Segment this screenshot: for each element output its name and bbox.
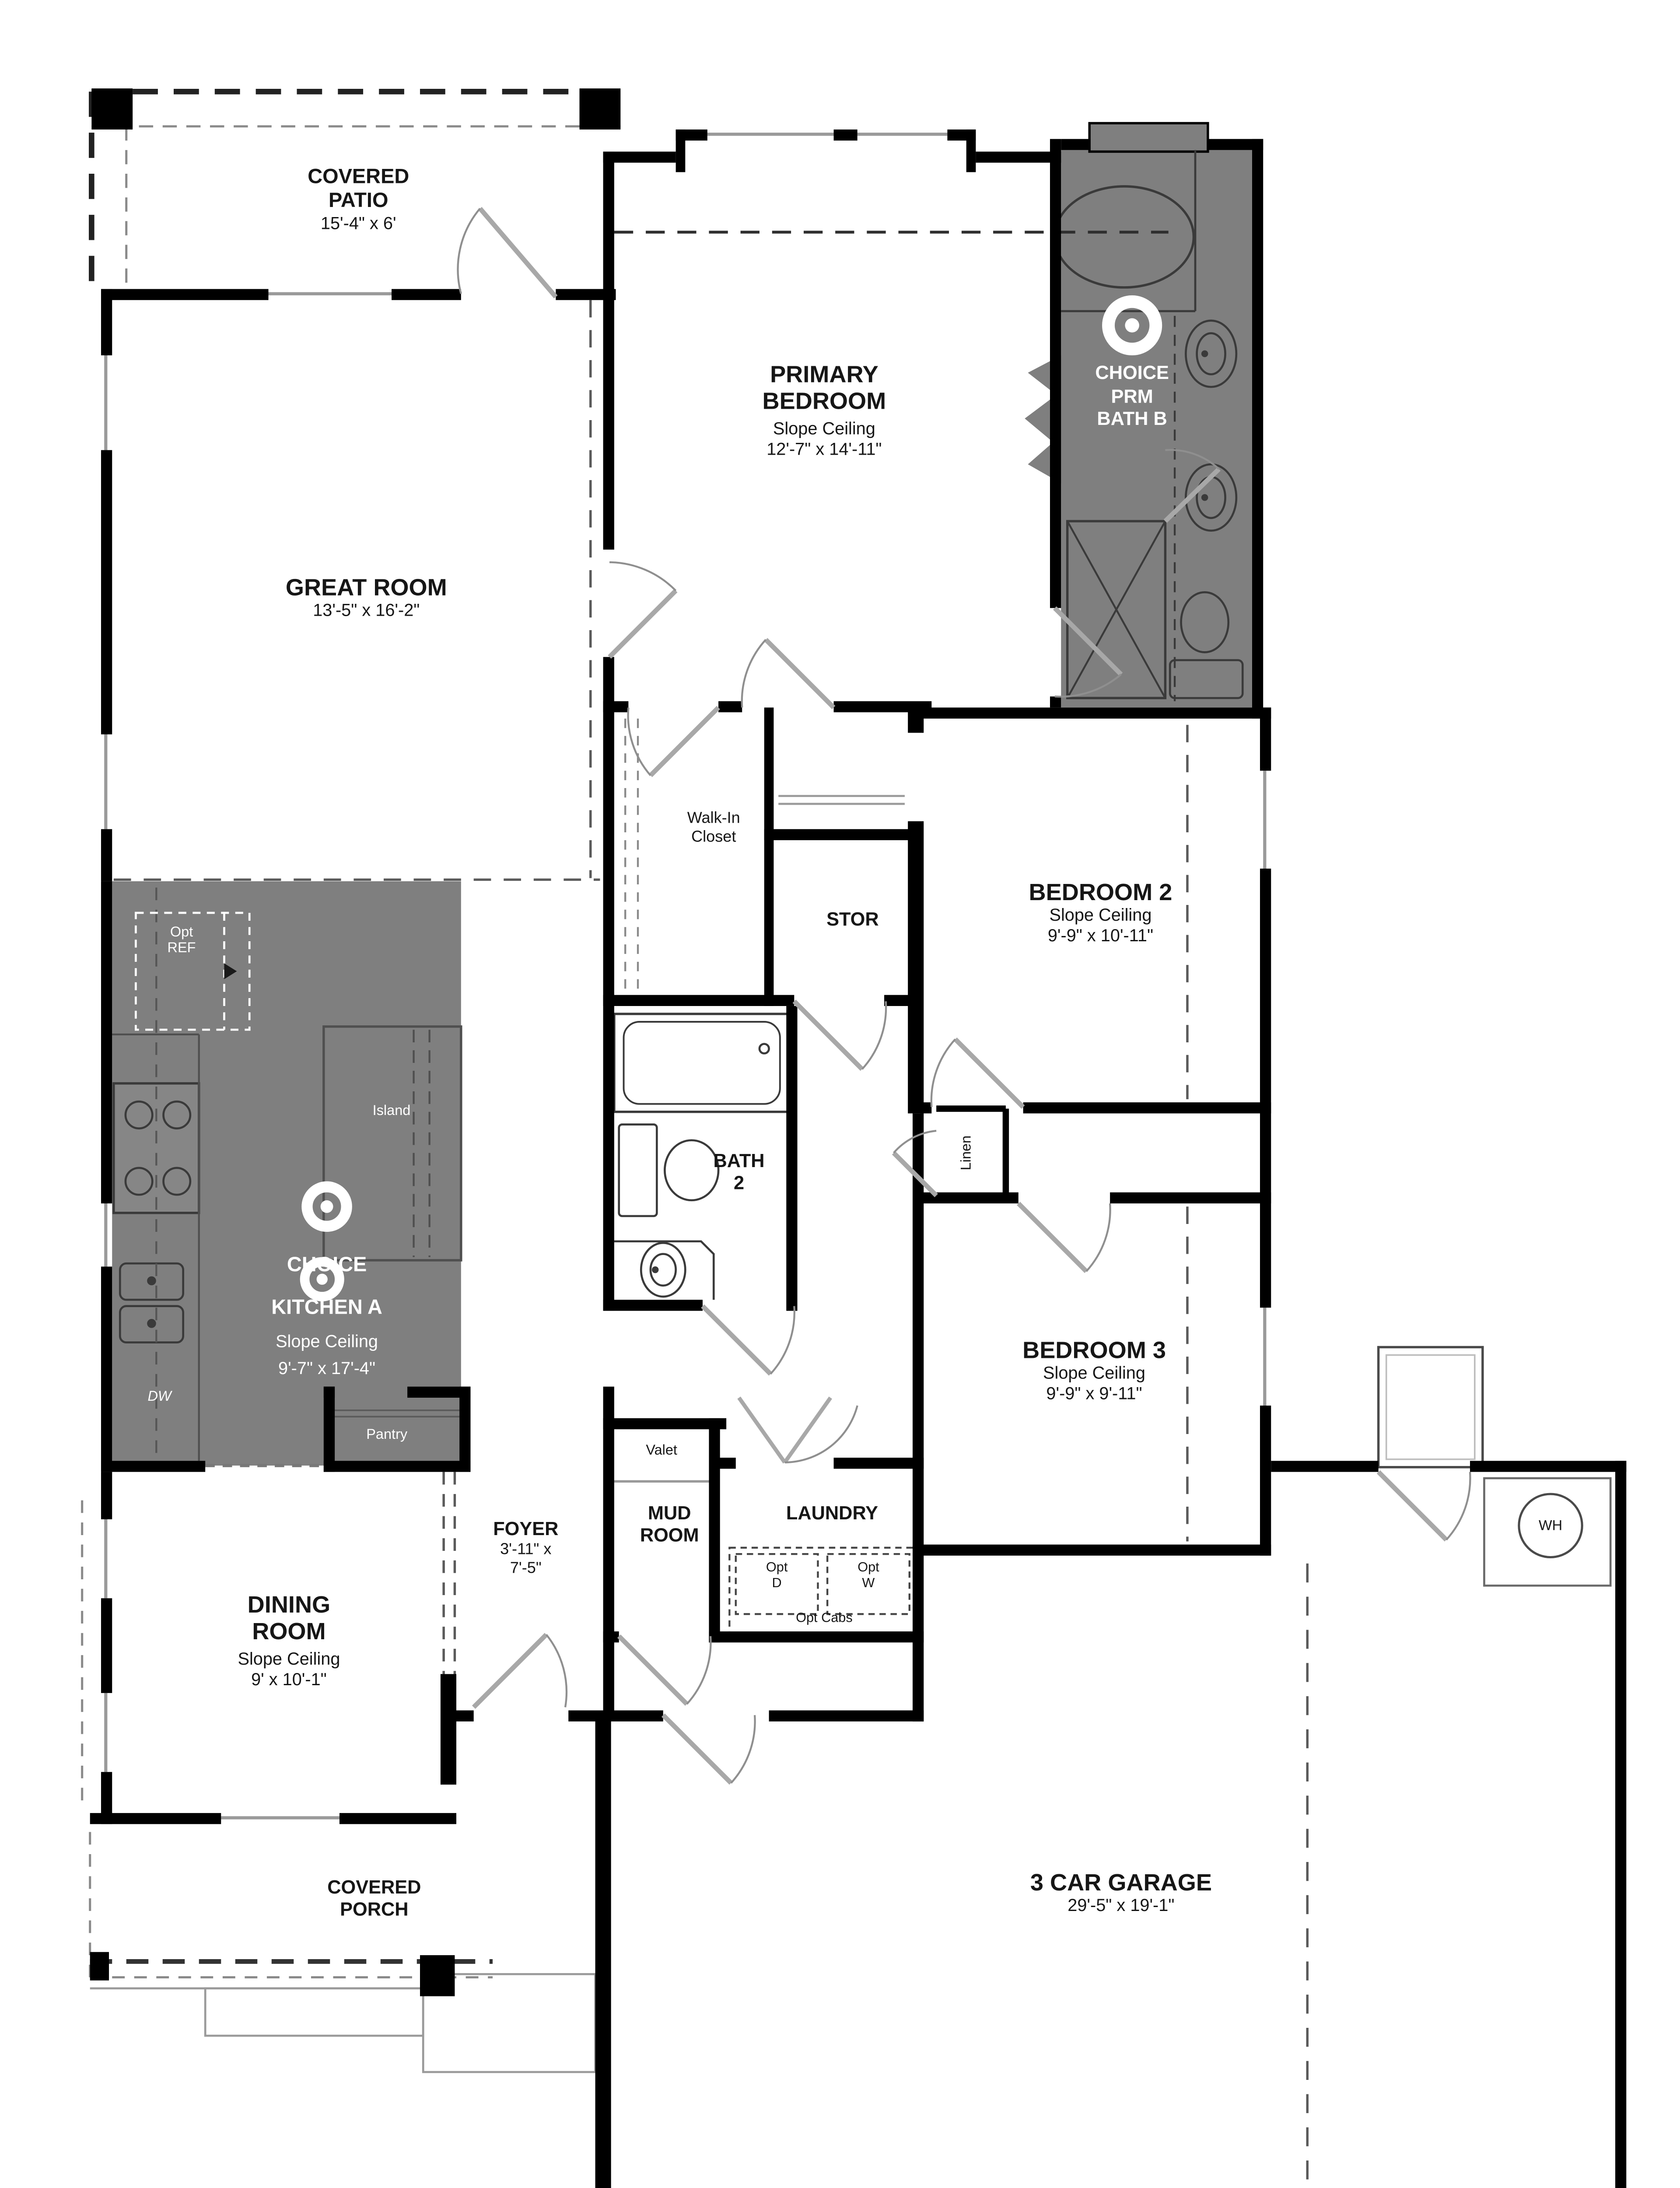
opt-cabs-label: Opt Cabs xyxy=(796,1611,853,1627)
garage-label: 3 CAR GARAGE 29'-5" x 19'-1" xyxy=(1030,1870,1212,1918)
kitchen-island xyxy=(324,1027,461,1260)
floor-plan-drawing xyxy=(0,0,1680,2188)
floor-plan-page: COVERED PATIO 15'-4" x 6' GREAT ROOM 13'… xyxy=(0,0,1680,2188)
bedroom-3-label: BEDROOM 3 Slope Ceiling 9'-9" x 9'-11" xyxy=(1022,1338,1166,1406)
opt-washer-label: Opt W xyxy=(857,1560,879,1592)
covered-porch-label: COVERED PORCH xyxy=(327,1878,421,1922)
choice-kitchen-ceiling: Slope Ceiling xyxy=(276,1333,378,1353)
bath-2-label: BATH 2 xyxy=(713,1151,764,1195)
bathtub-icon-bath2 xyxy=(614,1014,790,1112)
foyer-label: FOYER 3'-11" x 7'-5" xyxy=(493,1519,558,1578)
dishwasher-label: DW xyxy=(147,1388,171,1405)
opt-dryer-label: Opt D xyxy=(766,1560,787,1592)
storage-label: STOR xyxy=(826,910,879,932)
choice-kitchen-label-1: CHOICE xyxy=(287,1252,367,1276)
pantry-label: Pantry xyxy=(366,1426,407,1443)
choice-kitchen-label-2: KITCHEN A xyxy=(271,1295,382,1318)
dining-room-label: DINING ROOM Slope Ceiling 9' x 10'-1" xyxy=(238,1592,340,1690)
opt-ref-label: Opt REF xyxy=(168,924,196,957)
toilet-icon-bath2 xyxy=(619,1125,718,1216)
linen-label: Linen xyxy=(958,1136,975,1171)
walk-in-closet-label: Walk-In Closet xyxy=(687,810,740,847)
water-heater-label: WH xyxy=(1539,1517,1562,1534)
mud-room-label: MUD ROOM xyxy=(640,1504,699,1547)
choice-prm-bath-label: CHOICE PRM BATH B xyxy=(1095,361,1169,431)
sink-icon-bath2 xyxy=(614,1241,714,1300)
laundry-label: LAUNDRY xyxy=(786,1504,878,1525)
stove-icon xyxy=(114,1083,199,1213)
island-label: Island xyxy=(373,1102,411,1119)
chimney-outline xyxy=(1379,1347,1483,1467)
great-room-label: GREAT ROOM 13'-5" x 16'-2" xyxy=(286,575,447,623)
primary-bath-bump xyxy=(1089,123,1208,152)
valet-label: Valet xyxy=(646,1442,677,1459)
covered-patio-label: COVERED PATIO 15'-4" x 6' xyxy=(308,164,409,235)
bedroom-2-label: BEDROOM 2 Slope Ceiling 9'-9" x 10'-11" xyxy=(1029,880,1172,947)
choice-kitchen-dims: 9'-7" x 17'-4" xyxy=(278,1360,375,1380)
primary-bedroom-label: PRIMARY BEDROOM Slope Ceiling 12'-7" x 1… xyxy=(763,361,886,460)
